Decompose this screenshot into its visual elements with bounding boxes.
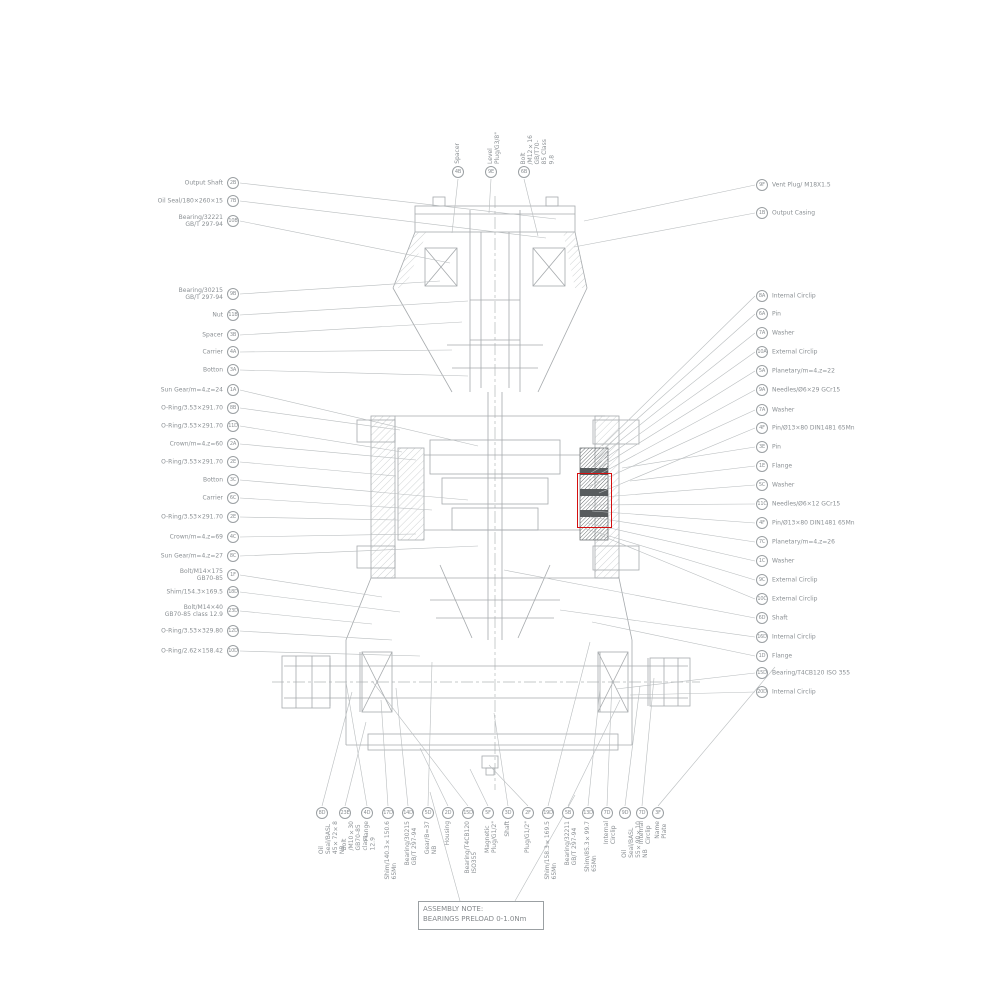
part-label: Carrier [73, 348, 223, 355]
part-label: Washer [772, 329, 947, 336]
part-label: Internal Circlip [772, 292, 947, 299]
part-ref-bubble: 6C [227, 492, 239, 504]
part-ref-bubble: 11D [227, 420, 239, 432]
part-ref-bubble: 10C [756, 593, 768, 605]
part-label: Shaft [772, 614, 947, 621]
leader-line [599, 428, 755, 493]
part-label: Bolt /M12×16 GB/T70-85 Class 9.8 [520, 135, 555, 164]
part-label: Vent Plug/ M18X1.5 [772, 181, 947, 188]
part-label: Washer [772, 406, 947, 413]
part-ref-bubble: 10B [227, 215, 239, 227]
part-ref-bubble: 3A [227, 364, 239, 376]
part-label: O-Ring/3.53×291.70 [73, 458, 223, 465]
part-label: O-Ring/3.53×291.70 [73, 404, 223, 411]
part-label: Magnetic Plug/G1/2" [484, 821, 498, 853]
part-ref-bubble: 3E [756, 441, 768, 453]
leader-line [524, 179, 538, 236]
part-ref-bubble: 2E [227, 456, 239, 468]
leader-line [396, 688, 408, 806]
leader-line [420, 748, 448, 806]
part-label: Gear/B=37 NB [424, 821, 438, 854]
part-ref-bubble: 7B [227, 195, 239, 207]
part-label: Shim/158.3×169.5 65Mn [544, 821, 558, 880]
leader-line [240, 575, 382, 597]
part-ref-bubble: 7A [756, 404, 768, 416]
part-ref-bubble: 9F [756, 179, 768, 191]
part-ref-bubble: 4F [756, 422, 768, 434]
leader-line [593, 352, 755, 467]
leader-line [489, 179, 491, 213]
part-label: Pin/Ø13×80 DIN1481 65Mn [772, 519, 947, 526]
leader-line [602, 296, 755, 446]
part-ref-bubble: 10A [756, 346, 768, 358]
leader-line [630, 692, 755, 695]
part-ref-bubble: 8C [227, 550, 239, 562]
leader-lines [240, 179, 775, 806]
part-ref-bubble: 7D [636, 807, 648, 819]
part-ref-bubble: 3B [227, 329, 239, 341]
part-ref-bubble: 17D [382, 807, 394, 819]
part-label: Crown/m=4,z=69 [73, 533, 223, 540]
leader-line [494, 713, 508, 806]
part-label: Flange [772, 652, 947, 659]
leader-line [504, 570, 755, 618]
part-label: Washer [772, 481, 947, 488]
part-ref-bubble: 12D [227, 625, 239, 637]
part-label: Spacer [73, 331, 223, 338]
drawing-linework [282, 197, 690, 901]
part-ref-bubble: 6D [756, 612, 768, 624]
part-ref-bubble: 3C [227, 474, 239, 486]
part-ref-bubble: 2F [522, 807, 534, 819]
part-ref-bubble: 1E [756, 460, 768, 472]
part-label: Oil Seal/180×260×15 [73, 197, 223, 204]
part-label: Internal Circlip [638, 821, 652, 844]
leader-line [240, 480, 468, 500]
part-label: O-Ring/3.53×291.70 [73, 422, 223, 429]
part-ref-bubble: 9B [227, 288, 239, 300]
part-ref-bubble: 10D [227, 645, 239, 657]
part-ref-bubble: 23D [227, 605, 239, 617]
leader-line [346, 682, 367, 806]
leader-line [622, 447, 755, 468]
part-label: Bearing/T4CB120 ISO355 [464, 821, 478, 874]
leader-line [240, 370, 468, 376]
part-ref-bubble: 11C [756, 498, 768, 510]
part-label: Output Shaft [73, 179, 223, 186]
part-label: Planetary/m=4,z=26 [772, 538, 947, 545]
leader-line [240, 350, 452, 352]
part-ref-bubble: 8D [316, 807, 328, 819]
part-ref-bubble: 1C [756, 555, 768, 567]
part-ref-bubble: 9A [756, 384, 768, 396]
leader-line [240, 651, 420, 656]
part-label: Output Casing [772, 209, 947, 216]
leader-line [574, 213, 755, 247]
part-label: Internal Circlip [603, 821, 617, 844]
part-ref-bubble: 5D [422, 807, 434, 819]
part-ref-bubble: 7C [756, 536, 768, 548]
part-label: Crown/m=4,z=60 [73, 440, 223, 447]
leader-line [600, 535, 755, 599]
leader-line [240, 322, 462, 335]
leader-line [372, 681, 468, 806]
part-label: Level Plug/G3/8" [487, 132, 501, 164]
part-label: External Circlip [772, 576, 947, 583]
part-label: Carrier [73, 494, 223, 501]
part-label: Bearing/32221 GB/T 297-94 [73, 214, 223, 228]
part-label: Housing [444, 821, 451, 845]
part-label: Shim/140.3×150.6 65Mn [384, 821, 398, 880]
part-label: Pin [772, 310, 947, 317]
part-ref-bubble: 3D [502, 807, 514, 819]
part-label: Botton [73, 476, 223, 483]
part-label: Pin/Ø13×80 DIN1481 65Mn [772, 424, 947, 431]
part-label: O-Ring/3.53×291.70 [73, 513, 223, 520]
part-label: Bolt/M14×40 GB70-85 class 12.9 [73, 604, 223, 618]
leader-line [568, 700, 620, 806]
leader-line [625, 686, 640, 806]
part-label: Bolt /M10×30 GB70-85 class 12.9 [341, 821, 376, 850]
part-ref-bubble: 2B [227, 177, 239, 189]
part-ref-bubble: 6A [756, 308, 768, 320]
leader-line [240, 390, 478, 446]
leader-line [630, 466, 755, 481]
leader-line [607, 681, 612, 806]
part-ref-bubble: 15D [462, 807, 474, 819]
part-ref-bubble: 8A [756, 290, 768, 302]
part-label: Shim/85.3×99.7 65Mn [584, 821, 598, 872]
part-ref-bubble: 9C [756, 574, 768, 586]
part-ref-bubble: 23E [339, 807, 351, 819]
leader-line [381, 700, 388, 806]
part-ref-bubble: 5C [756, 479, 768, 491]
part-label: Plug/G1/2" [524, 821, 531, 853]
part-ref-bubble: 4C [227, 531, 239, 543]
part-label: Needles/Ø6×12 GCr15 [772, 500, 947, 507]
part-ref-bubble: 9E [485, 166, 497, 178]
part-label: Sun Gear/m=4,z=27 [73, 552, 223, 559]
part-label: Washer [772, 557, 947, 564]
part-ref-bubble: 3F [652, 807, 664, 819]
part-ref-bubble: 13D [582, 807, 594, 819]
part-label: Bearing/30215 GB/T 297-94 [73, 287, 223, 301]
part-ref-bubble: 5F [482, 807, 494, 819]
part-label: O-Ring/3.53×329.80 [73, 627, 223, 634]
part-ref-bubble: 5B [562, 807, 574, 819]
part-ref-bubble: 8B [227, 402, 239, 414]
drawing-canvas: Output Shaft2BOil Seal/180×260×157BBeari… [0, 0, 1000, 1000]
assembly-note-body: BEARINGS PRELOAD 0-1.0Nm [423, 915, 539, 925]
part-label: Internal Circlip [772, 633, 947, 640]
part-label: Spacer [454, 143, 461, 164]
part-ref-bubble: 1F [227, 569, 239, 581]
part-ref-bubble: 4F [756, 517, 768, 529]
part-ref-bubble: 4B [452, 166, 464, 178]
part-ref-bubble: 11B [227, 309, 239, 321]
part-label: Planetary/m=4,z=22 [772, 367, 947, 374]
leader-line [584, 185, 755, 221]
part-ref-bubble: 7D [601, 807, 613, 819]
part-label: O-Ring/2.62×158.42 [73, 647, 223, 654]
part-ref-bubble: 1D [756, 650, 768, 662]
part-label: Needles/Ø6×29 GCr15 [772, 386, 947, 393]
assembly-note-heading: ASSEMBLY NOTE: [423, 905, 539, 915]
part-ref-bubble: 4A [227, 346, 239, 358]
part-ref-bubble: 2D [442, 807, 454, 819]
part-label: External Circlip [772, 348, 947, 355]
leader-line [345, 722, 366, 806]
leader-line [560, 610, 755, 637]
part-label: Shaft [504, 821, 511, 837]
leader-line [240, 592, 400, 612]
part-label: Botton [73, 366, 223, 373]
part-label: Bearing/T4CB120 ISO 355 [772, 669, 947, 676]
part-label: Flange [772, 462, 947, 469]
part-ref-bubble: 15D [756, 667, 768, 679]
part-label: Pin [772, 443, 947, 450]
part-label: Internal Circlip [772, 688, 947, 695]
part-ref-bubble: 2A [227, 438, 239, 450]
part-ref-bubble: 1B [756, 207, 768, 219]
part-ref-bubble: 18D [227, 586, 239, 598]
part-label: Sun Gear/m=4,z=24 [73, 386, 223, 393]
leader-line [470, 769, 488, 806]
leader-line [596, 333, 755, 460]
centerlines [272, 196, 700, 790]
highlight-box[interactable] [577, 473, 612, 528]
leader-line [588, 688, 600, 806]
part-label: External Circlip [772, 595, 947, 602]
part-ref-bubble: 4D [361, 807, 373, 819]
part-label: Bearing/30215 GB/T 297-94 [404, 821, 418, 865]
part-ref-bubble: 6B [518, 166, 530, 178]
leader-line [240, 301, 468, 315]
part-label: Nut [73, 311, 223, 318]
leader-line [616, 673, 755, 689]
leader-line [240, 183, 556, 219]
assembly-note-box: ASSEMBLY NOTE: BEARINGS PRELOAD 0-1.0Nm [418, 901, 544, 930]
leader-line [592, 622, 755, 656]
part-ref-bubble: 19D [542, 807, 554, 819]
part-label: Shim/154.3×169.5 [73, 588, 223, 595]
part-ref-bubble: 7A [756, 327, 768, 339]
part-ref-bubble: 5A [756, 365, 768, 377]
part-ref-bubble: 9D [619, 807, 631, 819]
leader-line [240, 281, 440, 294]
leader-line [548, 642, 590, 806]
part-ref-bubble: 2E [227, 511, 239, 523]
part-ref-bubble: 1A [227, 384, 239, 396]
part-label: Bearing/32211 GB/T 297-94 [564, 821, 578, 865]
part-label: Flange [363, 821, 370, 841]
part-ref-bubble: 20D [756, 686, 768, 698]
leader-line [240, 201, 546, 238]
part-ref-bubble: 14D [402, 807, 414, 819]
part-label: Name Plate [654, 821, 668, 839]
part-label: Bolt/M14×175 GB70-85 [73, 568, 223, 582]
leader-line [240, 546, 478, 556]
leader-line [240, 631, 392, 640]
leader-line [240, 611, 372, 624]
leader-line [322, 692, 352, 806]
part-ref-bubble: 16D [756, 631, 768, 643]
